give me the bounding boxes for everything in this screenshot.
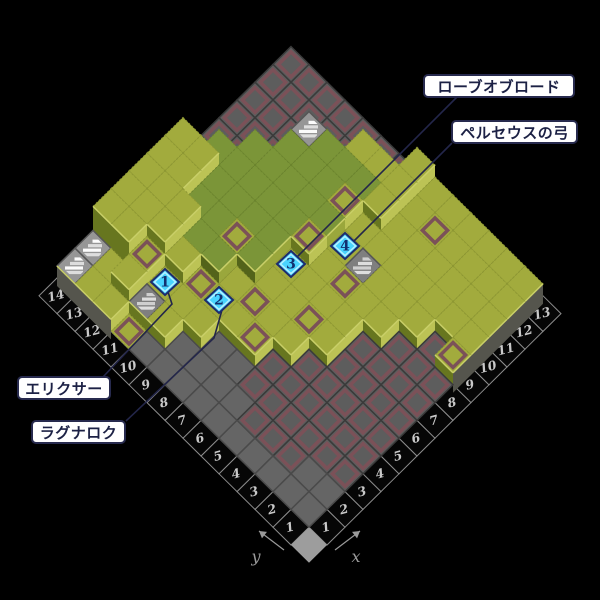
x-axis-label: x <box>351 547 360 566</box>
marker-number: 4 <box>340 239 350 255</box>
marker-number: 3 <box>286 257 296 273</box>
item-label-ragnarok: ラグナロク <box>31 420 126 444</box>
map-viewer: 123456789101112131234567891011121314yx12… <box>0 0 600 600</box>
marker-number: 2 <box>214 293 224 309</box>
marker-number: 1 <box>160 275 170 291</box>
item-label-perseus-bow: ペルセウスの弓 <box>451 120 578 144</box>
item-label-elixir: エリクサー <box>17 376 111 400</box>
axis-arrow-head <box>259 531 267 538</box>
y-axis-label: y <box>250 547 261 566</box>
terrain <box>57 47 543 528</box>
item-label-robe-of-lords: ローブオブロード <box>423 74 575 98</box>
axis-arrow-head <box>352 531 360 538</box>
